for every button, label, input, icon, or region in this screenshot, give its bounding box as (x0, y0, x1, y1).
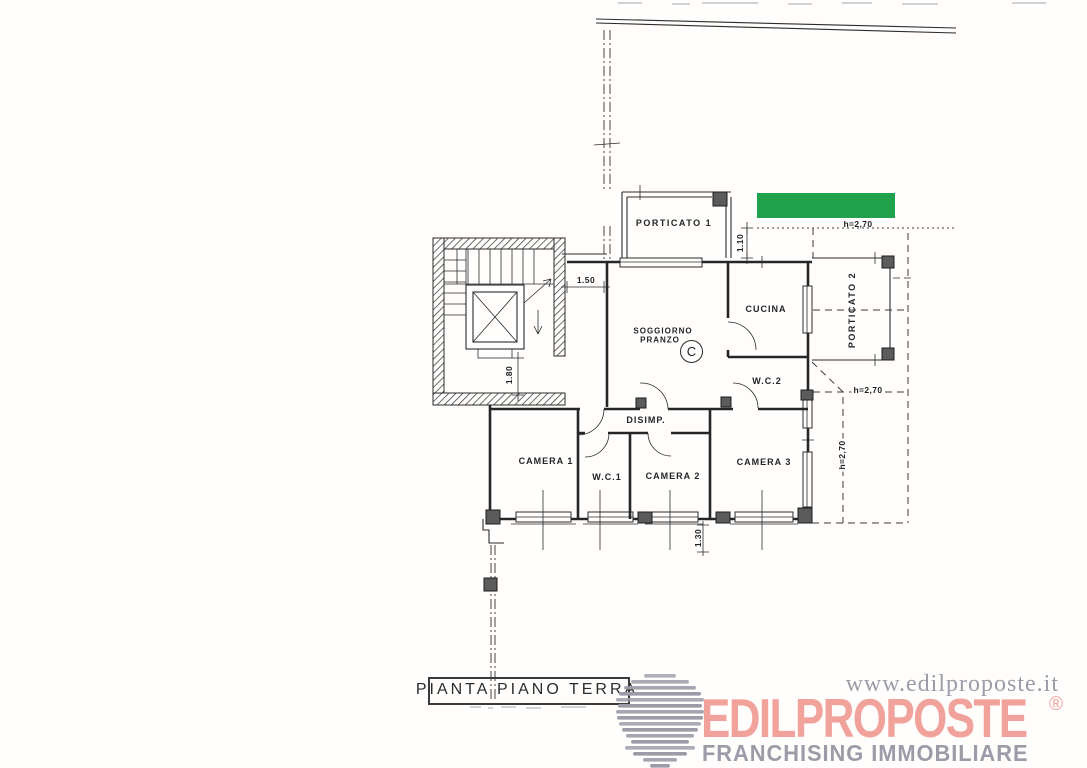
scanned-floor-plan-page: PORTICATO 1 SOGGIORNO PRANZO C CUCINA W.… (0, 0, 1087, 768)
brand-logo-mark (0, 0, 1087, 768)
registered-trademark-icon: ® (1049, 695, 1063, 714)
brand-tagline: FRANCHISING IMMOBILIARE (702, 742, 1029, 765)
brand-name: EDILPROPOSTE (701, 691, 1027, 746)
